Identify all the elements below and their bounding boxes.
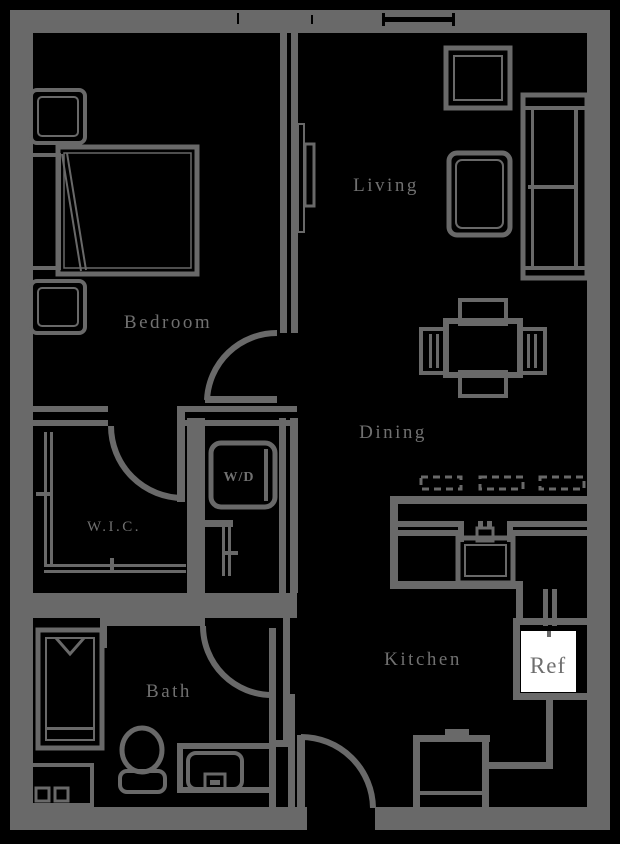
room-bedroom: Bedroom	[31, 90, 212, 333]
floor-plan: Bedroom Living	[0, 0, 620, 844]
bath-door	[203, 626, 276, 807]
wd-label: W/D	[224, 470, 255, 485]
bath-label: Bath	[146, 681, 192, 702]
kitchen-label: Kitchen	[384, 649, 462, 670]
room-bath: Bath	[30, 630, 272, 805]
armchair	[449, 153, 510, 235]
sofa	[523, 95, 587, 278]
closet-shelf-bottom	[44, 558, 186, 573]
entry-door	[297, 735, 373, 809]
side-table	[446, 48, 510, 108]
shower	[38, 630, 102, 748]
refrigerator: Ref	[513, 618, 588, 700]
living-label: Living	[353, 175, 419, 196]
dining-table	[446, 321, 520, 375]
room-kitchen: Ref Kitchen	[384, 477, 588, 807]
closet-rod-small	[205, 520, 238, 576]
dining-label: Dining	[359, 422, 427, 443]
room-dining: Dining	[359, 300, 545, 443]
ref-label: Ref	[530, 653, 566, 678]
room-wic: W.I.C.	[36, 432, 186, 573]
wd-closet: W/D	[205, 443, 275, 576]
floor-plan-drawing: Bedroom Living	[0, 0, 620, 844]
bedroom-door	[205, 333, 277, 403]
tv-console	[298, 124, 314, 232]
toilet	[120, 728, 165, 792]
nightstand-top	[31, 90, 85, 143]
nightstand-bottom	[31, 281, 85, 333]
bath-cabinet	[30, 765, 92, 805]
wic-door	[111, 406, 185, 502]
bedroom-label: Bedroom	[124, 312, 212, 333]
wic-label: W.I.C.	[87, 519, 141, 535]
closet-rod-left	[36, 432, 53, 566]
range-stove	[413, 729, 490, 807]
upper-cabinets-dashed	[421, 477, 584, 489]
vanity-sink	[177, 743, 272, 793]
bed	[31, 147, 197, 274]
kitchen-sink	[458, 521, 513, 583]
room-living: Living	[298, 48, 587, 278]
